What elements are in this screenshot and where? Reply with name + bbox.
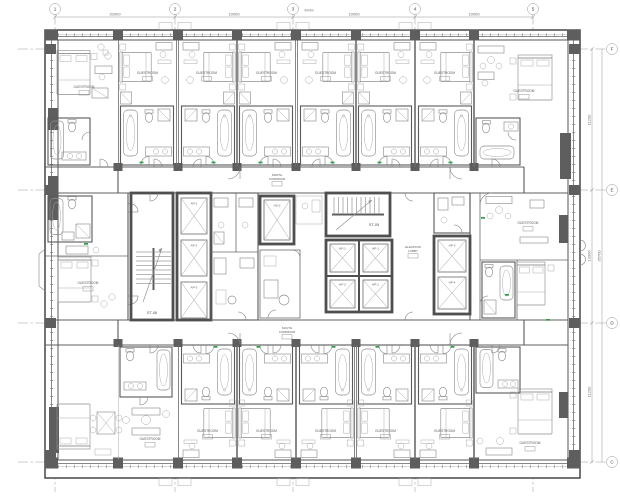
stair-st05-label: ST-05 [369,223,379,227]
grid-label-E: E [610,188,613,193]
dim-top-2: 10000 [228,12,240,17]
elevator-hp2-label: HP-2 [372,283,379,287]
grid-bubbles-right: F E D C [607,44,618,468]
room-label: GUESTROOM [520,441,541,445]
lobby-label-line2: LOBBY [408,249,418,253]
south-corridor-label-line2: CORRIDOR [279,330,296,334]
dim-right-2: 13300 [587,250,592,262]
dim-right-total: 35700 [597,250,602,262]
dim-top-1: 20000 [109,12,121,17]
room-label: GUESTROOM [434,429,455,433]
room-label: GUESTROOM [256,71,277,75]
bay-window-right [580,240,586,265]
green-marker [546,319,550,321]
green-marker [481,217,485,219]
floor-plan-canvas: 20000 10000 10000 10000 40000 11200 1330… [0,0,620,500]
dim-top-4: 10000 [468,12,480,17]
grid-label-3: 3 [292,7,295,12]
north-corridor-label-line2: CORRIDOR [269,177,286,181]
dim-top-3: 10000 [348,12,360,17]
elevator-hf2-label: HF-2 [339,283,346,287]
grid-label-5: 5 [532,7,535,12]
green-marker [505,294,509,296]
grid-label-4: 4 [414,7,417,12]
grid-label-2: 2 [174,7,177,12]
room-label: GUESTROOM [315,429,336,433]
elevator-hp4-label: HP-4 [449,281,456,285]
grid-label-C: C [610,460,614,465]
room-label: GUESTROOM [518,221,539,225]
dim-right-1: 11200 [587,114,592,126]
elevator-ap3-label: AP-3 [191,286,198,290]
elevator-hp1-label: HP-1 [372,247,379,251]
grid-label-F: F [611,47,614,52]
room-label: GUESTROOM [196,71,217,75]
elevator-ap2-label: AP-2 [191,244,198,248]
room-label: GUESTROOM [375,429,396,433]
green-marker [84,243,88,245]
room-label: GUESTROOM [197,429,218,433]
elevator-ap1-label: AP-1 [191,202,198,206]
grid-bubbles-top: 1 2 3 4 5 [50,4,539,15]
grid-label-1: 1 [54,7,57,12]
elevator-hs2-label: HS-2 [274,204,281,208]
room-label: GUESTROOM [434,71,455,75]
elevator-hp3-label: HP-3 [449,244,456,248]
dimension-right: 11200 13300 11200 35700 [587,47,603,464]
bay-window-left [39,249,45,291]
room-label: GUESTROOM [256,429,277,433]
room-label: GUESTROOM [137,71,158,75]
hotel-floor-plan: 20000 10000 10000 10000 40000 11200 1330… [0,0,620,500]
dim-right-3: 11200 [587,386,592,398]
elevator-bank-hf-hp: HF-1 HP-1 HF-2 HP-2 [326,240,392,312]
room-label: GUESTROOM [78,281,99,285]
stair-st06-label: ST-06 [147,311,157,315]
dim-top-total: 40000 [304,9,313,13]
room-label: GUESTROOM [315,71,336,75]
room-label: GUESTROOM [375,71,396,75]
elevator-hf1-label: HF-1 [339,247,346,251]
room-label: GUESTROOM [74,85,95,89]
grid-label-D: D [610,321,614,326]
room-label: GUESTROOM [514,89,535,93]
room-label: GUESTROOM [140,437,161,441]
